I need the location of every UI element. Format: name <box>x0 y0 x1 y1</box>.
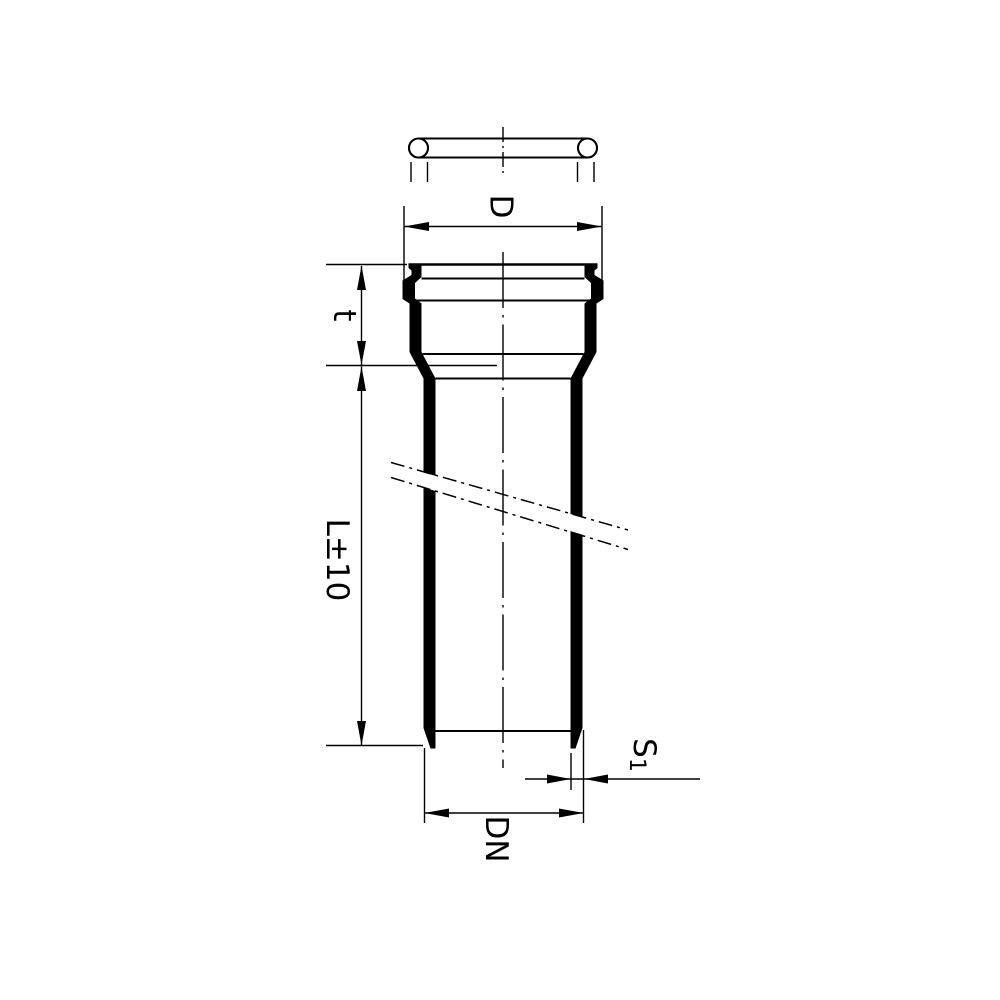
dimension-S1: S1 <box>525 730 700 823</box>
arrowhead-up <box>357 367 366 392</box>
pipe-wall-left <box>403 265 436 749</box>
label-nominal-diameter: DN <box>478 815 514 862</box>
arrowhead-right <box>559 809 584 818</box>
arrowhead-left <box>404 222 429 231</box>
arrowhead-left <box>425 809 450 818</box>
arrowhead-left <box>584 775 608 784</box>
arrowhead-up <box>357 266 366 291</box>
arrowhead-down <box>357 341 366 365</box>
arrowhead-right <box>547 775 571 784</box>
o-ring-right-section <box>578 139 597 158</box>
label-outer-diameter: D <box>483 195 519 219</box>
o-ring-gasket <box>409 127 597 182</box>
arrowhead-right <box>577 222 602 231</box>
pipe-wall-right <box>571 265 604 749</box>
label-wall-thickness-subscript: 1 <box>625 758 650 772</box>
label-socket-depth: t <box>326 309 362 321</box>
arrowhead-down <box>357 721 366 746</box>
dimension-DN: DN <box>425 748 584 863</box>
label-wall-thickness-symbol: S <box>626 738 662 758</box>
dimension-L: L±10 <box>319 367 423 746</box>
o-ring-left-section <box>409 139 428 158</box>
label-wall-thickness: S1 <box>625 738 663 772</box>
label-length-tolerance: L±10 <box>319 519 355 602</box>
drawing-canvas: D t L±10 <box>0 0 1000 1000</box>
pipe-technical-drawing: D t L±10 <box>0 0 1000 1000</box>
